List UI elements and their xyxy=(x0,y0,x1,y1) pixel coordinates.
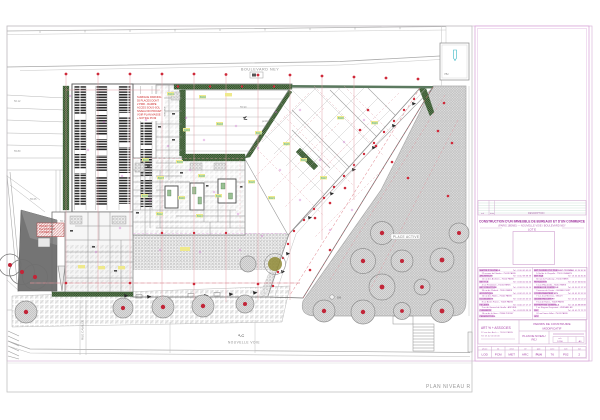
svg-text:FACADES: FACADES xyxy=(480,303,490,306)
svg-text:+ NOTICE PC39: + NOTICE PC39 xyxy=(137,116,157,120)
svg-text:12 rue des Arch — 75010 PARIS: 12 rue des Arch — 75010 PARIS xyxy=(481,331,513,334)
svg-text:16 rue de la Gare - 78300 POIS: 16 rue de la Gare - 78300 POISSY xyxy=(482,312,514,315)
svg-text:55 PLACES DONT: 55 PLACES DONT xyxy=(137,99,159,103)
svg-text:PLACE ACTIVE: PLACE ACTIVE xyxy=(393,235,419,239)
svg-text:55.90: 55.90 xyxy=(240,105,247,109)
svg-text:NOUVELLE VOIE: NOUVELLE VOIE xyxy=(228,341,260,345)
svg-text:PERMIS DE CONSTRUIRE: PERMIS DE CONSTRUIRE xyxy=(533,322,570,326)
svg-text:PLAN NIVEAU R: PLAN NIVEAU R xyxy=(426,384,471,390)
svg-text:ech: ech xyxy=(558,338,561,340)
svg-text:B114: B114 xyxy=(256,132,262,135)
svg-text:B104: B104 xyxy=(184,129,190,132)
svg-text:9 rue de Rome - 75008 PARIS: 9 rue de Rome - 75008 PARIS xyxy=(536,301,564,304)
svg-text:B110: B110 xyxy=(179,197,185,200)
svg-text:B119: B119 xyxy=(372,122,378,125)
svg-text:ART % + ASSOCIES: ART % + ASSOCIES xyxy=(481,326,511,330)
svg-text:B117: B117 xyxy=(321,177,327,180)
svg-text:30 rue de Chabrol - 75010 PARI: 30 rue de Chabrol - 75010 PARIS xyxy=(482,289,513,292)
svg-text:24 rue Firmin Gillot - 75015 P: 24 rue Firmin Gillot - 75015 PARIS xyxy=(536,312,568,315)
svg-text:ARC: ARC xyxy=(522,352,529,356)
svg-text:P02: P02 xyxy=(563,352,569,356)
svg-text:B115: B115 xyxy=(284,143,290,146)
svg-text:PCM: PCM xyxy=(495,352,502,356)
svg-text:55.7: 55.7 xyxy=(60,219,66,223)
svg-text:PLN: PLN xyxy=(536,352,543,356)
svg-text:BOULEVARD NEY: BOULEVARD NEY xyxy=(241,67,279,71)
svg-text:8 rue Bertin Poiree - 75018 PA: 8 rue Bertin Poiree - 75018 PARIS xyxy=(482,301,514,304)
svg-text:2: 2 xyxy=(578,352,580,356)
svg-text:PAYSAGISTE: PAYSAGISTE xyxy=(534,280,547,283)
svg-text:55.65: 55.65 xyxy=(30,197,37,201)
svg-text:1/200: 1/200 xyxy=(557,341,563,343)
svg-text:CONSERVE: CONSERVE xyxy=(39,231,53,234)
svg-text:B103: B103 xyxy=(217,123,223,126)
svg-text:B107: B107 xyxy=(158,177,164,180)
svg-text:R0J: R0J xyxy=(532,338,538,342)
svg-text:B113: B113 xyxy=(197,215,203,218)
svg-text:VOIR PLAN MASSE: VOIR PLAN MASSE xyxy=(137,113,161,117)
svg-text:phase: phase xyxy=(482,348,487,350)
svg-text:COORDONNATEUR SPS: COORDONNATEUR SPS xyxy=(534,292,558,295)
svg-text:Tel: 01 42 00 00 00: Tel: 01 42 00 00 00 xyxy=(481,336,500,338)
svg-text:B101: B101 xyxy=(168,93,174,96)
svg-text:ENTREPRISE GENERALE: ENTREPRISE GENERALE xyxy=(534,303,560,306)
svg-text:B102: B102 xyxy=(200,96,206,99)
svg-text:B118: B118 xyxy=(338,117,344,120)
svg-text:RUE CAMILLE: RUE CAMILLE xyxy=(81,320,85,340)
svg-text:2 PMR - RAMPE: 2 PMR - RAMPE xyxy=(137,102,157,106)
svg-text:ACCES SOUS-SOL: ACCES SOUS-SOL xyxy=(137,106,161,110)
svg-text:B112: B112 xyxy=(157,213,163,216)
svg-text:B116: B116 xyxy=(301,159,307,162)
svg-text:7 rue Jean Mermoz - VELIZY: 7 rue Jean Mermoz - VELIZY xyxy=(536,295,563,298)
svg-text:B105: B105 xyxy=(143,159,149,162)
svg-text:78c: 78c xyxy=(444,72,449,76)
svg-text:5 rue d'Hauteville - 75010 PAR: 5 rue d'Hauteville - 75010 PARIS xyxy=(536,283,566,286)
svg-text:CONSTRUCTION D'UN IMMEUBLE DE: CONSTRUCTION D'UN IMMEUBLE DE BUREAUX ET… xyxy=(479,220,586,224)
svg-text:BUREAU DE CONTROLE: BUREAU DE CONTROLE xyxy=(534,286,559,289)
svg-text:10 rue des Halles - 75001 PARI: 10 rue des Halles - 75001 PARIS xyxy=(482,295,513,298)
svg-text:2 av. du General de Gaulle - A: 2 av. du General de Gaulle - ARCUEIL xyxy=(482,306,518,309)
svg-text:NIVEAU R0 PROJET: NIVEAU R0 PROJET xyxy=(137,109,162,113)
svg-text:22 avenue de Flandre - 75019 P: 22 avenue de Flandre - 75019 PARIS xyxy=(482,272,517,275)
svg-text:14 bd de la Chapelle - 77420 C: 14 bd de la Chapelle - 77420 CHAMPS xyxy=(536,272,572,275)
svg-text:MET: MET xyxy=(508,352,515,356)
svg-text:SURFACE PARKING: SURFACE PARKING xyxy=(137,95,161,99)
svg-text:B106: B106 xyxy=(177,161,183,164)
svg-text:type: type xyxy=(537,347,541,350)
svg-text:LOD: LOD xyxy=(482,352,489,356)
svg-text:B120: B120 xyxy=(249,181,255,184)
svg-text:MODIFICATIF: MODIFICATIF xyxy=(543,327,562,331)
svg-text:↖C: ↖C xyxy=(238,333,244,338)
svg-text:BM: BM xyxy=(337,296,342,300)
svg-text:B109: B109 xyxy=(142,195,148,198)
svg-text:ACOUSTIQUE: ACOUSTIQUE xyxy=(480,292,494,295)
svg-text:LOT E: LOT E xyxy=(528,228,536,232)
svg-text:emet: emet xyxy=(510,347,515,350)
svg-text:3 avenue du Centre - GUYANCOUR: 3 avenue du Centre - GUYANCOURT xyxy=(536,289,571,292)
svg-text:B121: B121 xyxy=(269,197,275,200)
svg-text:ARCHITECTE: ARCHITECTE xyxy=(480,275,494,278)
svg-text:55.80: 55.80 xyxy=(14,149,21,153)
svg-text:12 rue des Archives - 75010 PA: 12 rue des Archives - 75010 PARIS xyxy=(482,278,515,281)
svg-text:jardin: jardin xyxy=(261,119,269,123)
svg-text:1 av. Eugene Freyssinet - VERS: 1 av. Eugene Freyssinet - VERSAILLES xyxy=(536,306,573,309)
svg-text:ind: ind xyxy=(578,348,581,350)
svg-text:76: 76 xyxy=(550,352,554,356)
svg-text:60 rue du Faubourg - 75010 PAR: 60 rue du Faubourg - 75010 PARIS xyxy=(536,278,569,281)
svg-text:DESCRIPTION: DESCRIPTION xyxy=(528,212,545,215)
svg-text:zone: zone xyxy=(550,348,554,350)
svg-text:B108: B108 xyxy=(199,175,205,178)
svg-text:B111: B111 xyxy=(216,195,222,198)
svg-text:MAITRE D'OUVRAGE: MAITRE D'OUVRAGE xyxy=(480,269,501,272)
svg-text:num: num xyxy=(564,348,568,350)
svg-text:4 rue Perdonnet - 75010 PARIS: 4 rue Perdonnet - 75010 PARIS xyxy=(482,283,511,286)
svg-text:56.12: 56.12 xyxy=(14,99,21,103)
